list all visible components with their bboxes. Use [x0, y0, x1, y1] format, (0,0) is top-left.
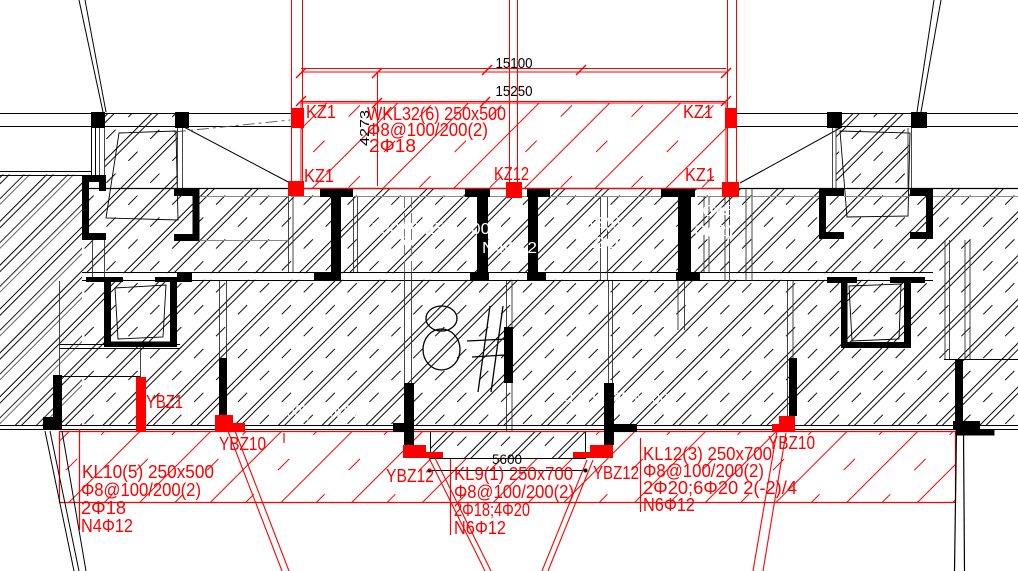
svg-text:Φ8@100/200(2): Φ8@100/200(2): [81, 480, 201, 500]
svg-text:YBZ12: YBZ12: [593, 463, 639, 483]
svg-text:2Φ18: 2Φ18: [369, 136, 416, 156]
svg-text:15250: 15250: [496, 83, 533, 100]
svg-text:/20: /20: [585, 235, 619, 252]
svg-text:Φ8@100/200(2): Φ8@100/200(2): [454, 482, 574, 502]
svg-text:KZ1: KZ1: [685, 165, 715, 185]
svg-text:N4Φ12: N4Φ12: [482, 240, 537, 257]
svg-text:N4Φ12: N4Φ12: [81, 516, 133, 536]
svg-text:KL30(7) 250x500: KL30(7) 250x500: [360, 221, 490, 238]
svg-text:KL9(1) 250x700: KL9(1) 250x700: [454, 464, 573, 484]
svg-text:YBZ10: YBZ10: [768, 433, 815, 453]
svg-text:0(2): 0(2): [694, 223, 734, 240]
svg-text:KZ1: KZ1: [304, 166, 334, 186]
svg-text:32(6: 32(6: [583, 215, 621, 232]
svg-text:KL10(5) 250x500: KL10(5) 250x500: [263, 402, 366, 421]
svg-text:50x5: 50x5: [692, 203, 734, 220]
svg-text:N6Φ12: N6Φ12: [454, 518, 506, 538]
svg-text:KL10(5) 250x500: KL10(5) 250x500: [82, 462, 214, 482]
svg-text:2Φ18: 2Φ18: [81, 498, 126, 518]
svg-text:YBZ10: YBZ10: [219, 434, 266, 454]
svg-text:N6Φ12: N6Φ12: [643, 495, 695, 515]
svg-text:YBZ12: YBZ12: [386, 466, 434, 486]
svg-text:KZ1: KZ1: [306, 102, 336, 122]
svg-text:YBZ1: YBZ1: [146, 392, 183, 412]
svg-text:KZ1: KZ1: [683, 102, 713, 122]
svg-text:KZ12: KZ12: [494, 164, 529, 184]
svg-text:2Φ18;4Φ20: 2Φ18;4Φ20: [454, 500, 530, 520]
svg-text:15100: 15100: [496, 55, 533, 72]
